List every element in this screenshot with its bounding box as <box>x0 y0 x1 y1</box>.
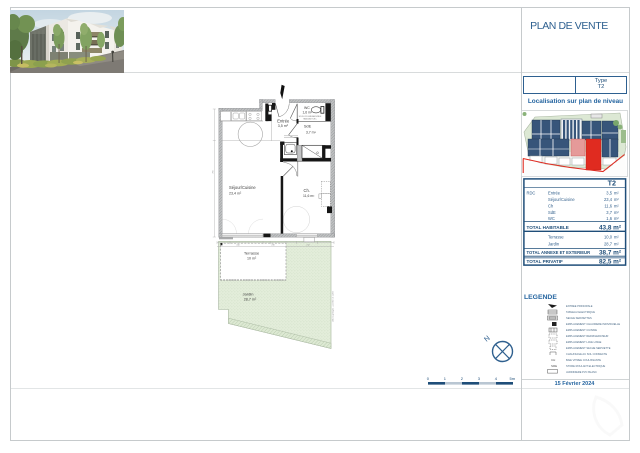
svg-text:m²: m² <box>614 242 619 247</box>
svg-text:1,6 m²: 1,6 m² <box>303 110 313 114</box>
svg-text:CH: CH <box>551 358 555 362</box>
svg-text:N: N <box>483 335 491 344</box>
svg-text:Terrasse: Terrasse <box>548 235 564 240</box>
svg-text:clôture grillagée + portillon: clôture grillagée + portillon h 1,20m <box>332 290 335 322</box>
svg-text:STORE ROULANT ELECTRIQUE: STORE ROULANT ELECTRIQUE <box>566 364 606 368</box>
svg-text:756: 756 <box>212 169 214 173</box>
svg-text:Ch: Ch <box>548 203 554 208</box>
svg-text:23,4: 23,4 <box>604 197 613 202</box>
svg-text:28,7: 28,7 <box>604 242 613 247</box>
svg-text:10 m²: 10 m² <box>247 256 257 260</box>
svg-text:CHAUFFAGE AU SOL CONNECTE: CHAUFFAGE AU SOL CONNECTE <box>566 352 607 356</box>
svg-text:1: 1 <box>444 376 447 381</box>
svg-text:Terrasse: Terrasse <box>244 251 260 256</box>
svg-text:TOTAL ANNEXE ET EXTERIEUR: TOTAL ANNEXE ET EXTERIEUR <box>527 250 591 255</box>
svg-text:Séjour/Cuisine: Séjour/Cuisine <box>548 197 575 202</box>
svg-text:BAIE VITREE COULISSANTE: BAIE VITREE COULISSANTE <box>566 358 601 362</box>
svg-text:m²: m² <box>614 190 619 195</box>
svg-text:Jardin: Jardin <box>243 291 254 296</box>
svg-text:Entrée: Entrée <box>277 118 290 123</box>
svg-text:11,6 m²: 11,6 m² <box>303 194 315 198</box>
svg-text:Séjour/Cuisine: Séjour/Cuisine <box>229 185 256 190</box>
svg-text:11,6: 11,6 <box>604 203 612 208</box>
svg-text:3,7 m²: 3,7 m² <box>306 130 317 134</box>
svg-text:43,8 m²: 43,8 m² <box>599 224 621 231</box>
svg-text:TABLEAU ELECTRIQUE: TABLEAU ELECTRIQUE <box>566 310 595 314</box>
svg-text:3,5: 3,5 <box>606 190 612 195</box>
svg-text:TOTAL PRIVATIF: TOTAL PRIVATIF <box>527 259 564 264</box>
svg-text:38,7 m²: 38,7 m² <box>599 250 621 257</box>
svg-text:TABLEAU ELEC.: TABLEAU ELEC. <box>303 117 317 120</box>
svg-text:3,7: 3,7 <box>606 210 612 215</box>
svg-text:m²: m² <box>614 210 619 215</box>
svg-text:EMPLACEMENT CUISINE: EMPLACEMENT CUISINE <box>566 328 597 332</box>
svg-text:Entrée: Entrée <box>548 190 561 195</box>
svg-text:SdE: SdE <box>304 124 312 129</box>
svg-text:3: 3 <box>478 376 481 381</box>
svg-text:SdE: SdE <box>548 210 556 215</box>
svg-text:10,0: 10,0 <box>604 235 613 240</box>
svg-text:m²: m² <box>614 235 619 240</box>
svg-text:EMPLACEMENT REFRIGERATEUR: EMPLACEMENT REFRIGERATEUR <box>566 334 609 338</box>
svg-text:m²: m² <box>614 216 619 221</box>
svg-text:m²: m² <box>614 203 619 208</box>
svg-text:82,5 m²: 82,5 m² <box>599 258 621 265</box>
svg-text:RDC: RDC <box>527 190 536 195</box>
svg-text:23,4 m²: 23,4 m² <box>229 191 242 195</box>
svg-text:3,5 m²: 3,5 m² <box>278 124 289 128</box>
svg-text:JARDINIERE PVC BLANC: JARDINIERE PVC BLANC <box>566 370 597 374</box>
svg-text:Ch.: Ch. <box>304 188 310 193</box>
svg-text:m²: m² <box>614 197 619 202</box>
svg-text:TOTAL HABITABLE: TOTAL HABITABLE <box>527 225 569 230</box>
svg-text:SECHE SERVIETTES: SECHE SERVIETTES <box>566 316 592 320</box>
svg-text:T2: T2 <box>608 179 616 188</box>
svg-text:SRE: SRE <box>551 364 557 368</box>
svg-text:ENTREE PRINCIPALE: ENTREE PRINCIPALE <box>566 304 593 308</box>
svg-text:EMPLACEMENT SECHE SERVIETTE: EMPLACEMENT SECHE SERVIETTE <box>566 346 611 350</box>
svg-text:WC: WC <box>548 216 555 221</box>
svg-text:1,6: 1,6 <box>606 216 612 221</box>
svg-text:0: 0 <box>427 376 430 381</box>
svg-text:5m: 5m <box>510 376 516 381</box>
svg-text:EMPLACEMENT LAVE LINGE: EMPLACEMENT LAVE LINGE <box>566 340 602 344</box>
svg-text:28,7 m²: 28,7 m² <box>244 297 257 301</box>
svg-text:2: 2 <box>461 376 464 381</box>
svg-text:Jardin: Jardin <box>548 242 560 247</box>
svg-text:EMPLACEMENT CHAUDIERE INDIVIDU: EMPLACEMENT CHAUDIERE INDIVIDUELLE <box>566 322 620 326</box>
svg-text:4: 4 <box>495 376 498 381</box>
